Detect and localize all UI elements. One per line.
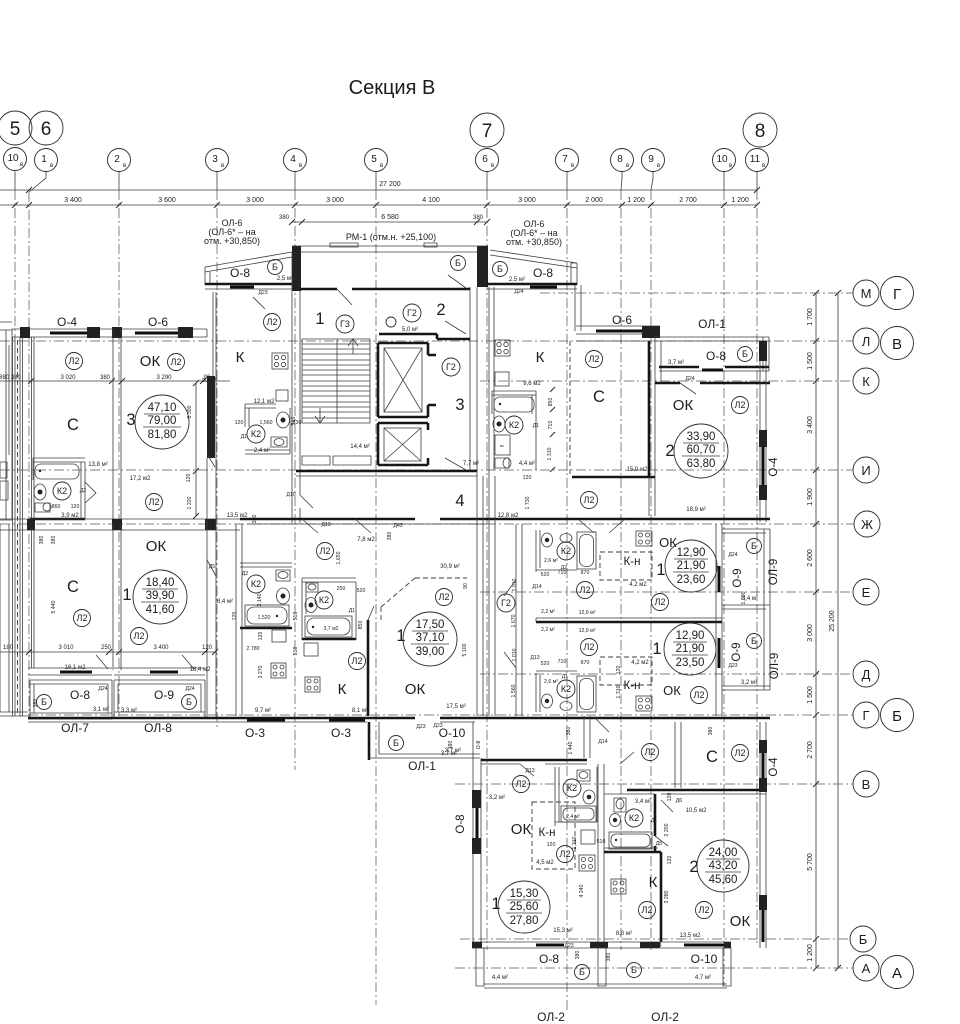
svg-text:О-4: О-4 <box>768 457 780 477</box>
svg-text:в: в <box>762 163 765 169</box>
svg-text:3,1 м²: 3,1 м² <box>93 707 109 713</box>
svg-text:3 000: 3 000 <box>246 197 264 204</box>
svg-text:С: С <box>67 416 79 434</box>
svg-text:Д1: Д1 <box>241 434 248 440</box>
svg-text:2,140: 2,140 <box>257 593 263 606</box>
svg-text:7,7 м²: 7,7 м² <box>463 461 479 467</box>
svg-text:Б: Б <box>393 738 399 748</box>
svg-text:850: 850 <box>548 398 554 407</box>
svg-text:в: в <box>571 163 574 169</box>
svg-text:О-9: О-9 <box>732 568 744 587</box>
svg-text:Д24: Д24 <box>514 289 523 295</box>
svg-text:О-4: О-4 <box>768 757 780 777</box>
svg-text:4 100: 4 100 <box>422 197 440 204</box>
svg-text:120: 120 <box>186 474 192 483</box>
svg-text:3 400: 3 400 <box>64 197 82 204</box>
svg-text:Л2: Л2 <box>352 656 363 666</box>
svg-text:ОЛ-2: ОЛ-2 <box>537 1010 565 1024</box>
svg-text:1 310: 1 310 <box>547 447 553 460</box>
svg-text:120: 120 <box>71 504 80 510</box>
svg-text:3,7 м2: 3,7 м2 <box>323 626 338 632</box>
svg-text:250: 250 <box>337 586 346 592</box>
svg-text:О-8: О-8 <box>539 952 559 966</box>
svg-text:10: 10 <box>7 153 19 164</box>
svg-text:380: 380 <box>33 699 39 708</box>
svg-text:Г2: Г2 <box>446 362 456 372</box>
svg-text:Д24: Д24 <box>652 943 661 949</box>
svg-text:510: 510 <box>291 417 297 426</box>
svg-text:13,5 м2: 13,5 м2 <box>227 513 248 519</box>
svg-text:18,40: 18,40 <box>146 577 175 589</box>
svg-text:ОК: ОК <box>663 683 681 698</box>
svg-text:Д24: Д24 <box>185 686 194 692</box>
svg-text:Л2: Л2 <box>642 905 653 915</box>
svg-text:Д13: Д13 <box>525 768 534 774</box>
svg-text:380: 380 <box>252 515 258 524</box>
svg-text:О-8: О-8 <box>533 266 553 280</box>
svg-text:Г: Г <box>893 286 901 303</box>
svg-text:Д5: Д5 <box>209 564 216 570</box>
svg-text:О-9: О-9 <box>731 642 743 661</box>
svg-text:Л2: Л2 <box>69 356 80 366</box>
svg-text:в: в <box>221 163 224 169</box>
svg-text:3: 3 <box>212 154 218 165</box>
svg-text:Б: Б <box>859 932 868 947</box>
svg-text:3 280: 3 280 <box>664 890 670 903</box>
svg-text:Л2: Л2 <box>516 779 527 789</box>
svg-text:24,00: 24,00 <box>709 847 738 859</box>
svg-text:С: С <box>593 388 605 406</box>
svg-text:ОК: ОК <box>405 681 426 698</box>
svg-text:О-3: О-3 <box>331 726 351 740</box>
svg-text:120: 120 <box>547 842 556 848</box>
svg-text:8,4 м²: 8,4 м² <box>217 599 233 605</box>
svg-text:2 700: 2 700 <box>807 741 814 759</box>
svg-text:380: 380 <box>708 727 714 736</box>
svg-text:Д6: Д6 <box>676 798 683 804</box>
svg-text:О-3: О-3 <box>245 726 265 740</box>
svg-text:в: в <box>657 163 660 169</box>
svg-text:Д23: Д23 <box>433 723 442 729</box>
svg-text:ОЛ-1: ОЛ-1 <box>698 317 726 331</box>
svg-text:О-10: О-10 <box>439 726 466 740</box>
svg-text:10: 10 <box>716 154 728 165</box>
svg-text:Д13: Д13 <box>321 522 330 528</box>
svg-text:4,2 м2: 4,2 м2 <box>629 582 647 588</box>
svg-text:О-8: О-8 <box>230 266 250 280</box>
svg-text:О-9: О-9 <box>154 688 174 702</box>
svg-text:8,0 м²: 8,0 м² <box>616 931 632 937</box>
svg-text:В: В <box>892 336 902 353</box>
svg-text:90: 90 <box>202 378 208 384</box>
svg-text:М: М <box>861 286 872 301</box>
svg-text:1 700: 1 700 <box>807 308 814 326</box>
svg-text:27 200: 27 200 <box>379 181 401 188</box>
svg-text:5 300: 5 300 <box>187 405 193 418</box>
svg-text:К: К <box>338 681 347 698</box>
svg-text:Д14: Д14 <box>532 584 541 590</box>
svg-text:1,310: 1,310 <box>572 836 578 849</box>
svg-text:в: в <box>729 163 732 169</box>
svg-text:Д13: Д13 <box>530 655 539 661</box>
svg-text:23,50: 23,50 <box>676 657 705 669</box>
svg-text:3 400: 3 400 <box>153 645 169 651</box>
svg-text:520: 520 <box>357 588 366 594</box>
svg-text:17,50: 17,50 <box>416 619 445 631</box>
svg-text:90: 90 <box>463 583 469 589</box>
svg-text:43,20: 43,20 <box>709 860 738 872</box>
svg-text:К2: К2 <box>561 546 571 556</box>
svg-text:Л: Л <box>862 334 871 349</box>
svg-text:Секция В: Секция В <box>349 77 436 99</box>
svg-text:С: С <box>67 578 79 596</box>
svg-text:Л2: Л2 <box>645 747 656 757</box>
svg-text:21,90: 21,90 <box>676 643 705 655</box>
svg-text:11: 11 <box>750 154 761 165</box>
svg-text:33,90: 33,90 <box>687 431 716 443</box>
svg-text:870: 870 <box>581 660 590 666</box>
svg-text:К2: К2 <box>561 684 571 694</box>
svg-text:15,0 м2: 15,0 м2 <box>627 467 648 473</box>
svg-text:РМ-1 (отм.н. +25,100): РМ-1 (отм.н. +25,100) <box>346 232 436 242</box>
svg-text:Л2: Л2 <box>655 597 666 607</box>
svg-text:1: 1 <box>122 586 131 604</box>
svg-text:17,5 м²: 17,5 м² <box>446 704 465 710</box>
svg-text:1: 1 <box>41 154 47 165</box>
svg-text:3 290: 3 290 <box>156 375 172 381</box>
svg-text:Л2: Л2 <box>699 905 710 915</box>
svg-text:380: 380 <box>51 536 57 545</box>
svg-text:18,9 м²: 18,9 м² <box>686 507 705 513</box>
svg-text:Л2: Л2 <box>694 690 705 700</box>
svg-text:380: 380 <box>279 215 290 221</box>
svg-text:Д23: Д23 <box>258 290 267 296</box>
svg-text:41,60: 41,60 <box>146 604 175 616</box>
svg-text:3 010: 3 010 <box>58 645 74 651</box>
svg-text:3 400: 3 400 <box>807 416 814 434</box>
svg-text:2,2 м²: 2,2 м² <box>541 609 555 615</box>
svg-text:15,30: 15,30 <box>510 888 539 900</box>
svg-text:ОЛ-9: ОЛ-9 <box>768 559 780 586</box>
svg-text:2,4 м²: 2,4 м² <box>254 448 270 454</box>
svg-text:Л2: Л2 <box>589 354 600 364</box>
svg-text:Л2: Л2 <box>149 497 160 507</box>
svg-text:К2: К2 <box>629 813 639 823</box>
svg-text:880 380: 880 380 <box>0 375 22 381</box>
svg-text:вс: вс <box>500 443 504 448</box>
svg-text:Г2: Г2 <box>501 598 511 608</box>
svg-text:81,80: 81,80 <box>148 429 177 441</box>
svg-text:6 580: 6 580 <box>381 214 399 221</box>
svg-text:8: 8 <box>755 121 766 142</box>
svg-text:Л2: Л2 <box>439 592 450 602</box>
svg-text:380: 380 <box>39 536 45 545</box>
svg-text:520: 520 <box>541 661 550 667</box>
svg-text:Л2: Л2 <box>267 317 278 327</box>
svg-text:3: 3 <box>126 411 135 429</box>
svg-text:Л2: Л2 <box>735 748 746 758</box>
svg-text:250: 250 <box>101 645 112 651</box>
svg-text:4: 4 <box>455 492 464 510</box>
svg-text:2: 2 <box>665 442 674 460</box>
svg-text:4,7 м²: 4,7 м² <box>695 975 711 981</box>
svg-text:1: 1 <box>315 310 324 328</box>
svg-text:2 200: 2 200 <box>664 823 670 836</box>
svg-text:Л2: Л2 <box>560 849 571 859</box>
svg-text:9,6 м2: 9,6 м2 <box>523 381 541 387</box>
svg-text:9: 9 <box>648 154 654 165</box>
svg-text:3,2 м²: 3,2 м² <box>489 795 505 801</box>
svg-text:Б: Б <box>631 965 637 975</box>
svg-text:3,4 м²: 3,4 м² <box>635 799 651 805</box>
svg-text:1 500: 1 500 <box>807 686 814 704</box>
svg-text:1 200: 1 200 <box>731 197 749 204</box>
svg-text:120: 120 <box>523 475 532 481</box>
svg-text:380: 380 <box>606 953 612 962</box>
svg-text:К2: К2 <box>251 429 261 439</box>
svg-text:3,7 м²: 3,7 м² <box>445 748 461 754</box>
svg-text:5,0 м²: 5,0 м² <box>402 327 418 333</box>
svg-text:К2: К2 <box>567 783 577 793</box>
svg-text:Б: Б <box>186 697 192 707</box>
svg-text:1 440: 1 440 <box>568 741 574 754</box>
svg-text:25,60: 25,60 <box>510 901 539 913</box>
svg-text:380: 380 <box>575 951 581 960</box>
svg-text:Г3: Г3 <box>340 319 350 329</box>
svg-text:1: 1 <box>652 640 661 658</box>
svg-text:1: 1 <box>491 895 500 913</box>
svg-text:Д2: Д2 <box>242 571 249 577</box>
svg-text:О-8: О-8 <box>706 349 726 363</box>
svg-text:710: 710 <box>558 570 567 576</box>
svg-text:Л2: Л2 <box>580 585 591 595</box>
svg-text:К-н: К-н <box>624 680 641 692</box>
svg-text:79,00: 79,00 <box>148 415 177 427</box>
svg-text:Д24: Д24 <box>98 686 107 692</box>
svg-text:Д1: Д1 <box>651 818 658 824</box>
svg-text:К-н: К-н <box>624 556 641 568</box>
svg-text:1 310: 1 310 <box>616 685 622 698</box>
svg-text:180: 180 <box>3 645 14 651</box>
svg-text:510: 510 <box>293 612 299 621</box>
svg-text:в: в <box>20 162 23 168</box>
svg-text:380: 380 <box>473 215 484 221</box>
svg-text:К: К <box>649 874 658 891</box>
svg-text:Д23: Д23 <box>416 724 425 730</box>
svg-text:520: 520 <box>541 572 550 578</box>
svg-text:4,4 м²: 4,4 м² <box>519 461 535 467</box>
svg-text:Б: Б <box>742 349 748 359</box>
svg-text:2 700: 2 700 <box>679 197 697 204</box>
svg-text:4 240: 4 240 <box>579 884 585 897</box>
svg-text:1 200: 1 200 <box>807 944 814 962</box>
svg-text:Л2: Л2 <box>320 546 331 556</box>
svg-text:380: 380 <box>100 375 111 381</box>
svg-text:21,90: 21,90 <box>677 560 706 572</box>
svg-text:2: 2 <box>114 154 120 165</box>
svg-text:120: 120 <box>616 666 622 675</box>
svg-text:ОК: ОК <box>730 913 751 930</box>
svg-text:Л2: Л2 <box>584 495 595 505</box>
svg-text:ОЛ-1: ОЛ-1 <box>408 759 436 773</box>
svg-text:К: К <box>862 374 870 389</box>
svg-text:3 600: 3 600 <box>158 197 176 204</box>
svg-text:4,2 м2: 4,2 м2 <box>631 660 649 666</box>
svg-text:1 200: 1 200 <box>627 197 645 204</box>
svg-text:Д23: Д23 <box>564 943 573 949</box>
svg-text:2,5 м²: 2,5 м² <box>509 277 525 283</box>
svg-text:Д43: Д43 <box>393 523 402 529</box>
svg-text:60,70: 60,70 <box>687 444 716 456</box>
svg-text:15,3 м²: 15,3 м² <box>553 928 572 934</box>
svg-text:ОК: ОК <box>659 535 677 550</box>
svg-text:120: 120 <box>232 612 238 621</box>
svg-text:710: 710 <box>548 421 554 430</box>
svg-text:25 200: 25 200 <box>829 610 836 632</box>
svg-text:2,5 м²: 2,5 м² <box>277 276 293 282</box>
svg-text:6: 6 <box>41 119 52 140</box>
svg-text:в: в <box>626 163 629 169</box>
svg-text:Б: Б <box>751 541 757 551</box>
svg-text:1 010: 1 010 <box>512 648 518 661</box>
svg-text:7,8 м2: 7,8 м2 <box>357 537 375 543</box>
svg-text:Д10: Д10 <box>286 492 295 498</box>
svg-text:Д1: Д1 <box>349 608 356 614</box>
svg-text:1 730: 1 730 <box>525 496 531 509</box>
svg-text:Б: Б <box>751 636 757 646</box>
svg-text:К: К <box>236 349 245 366</box>
svg-text:3,3 м²: 3,3 м² <box>121 708 137 714</box>
svg-text:1: 1 <box>656 561 665 579</box>
svg-text:14,4 м²: 14,4 м² <box>350 444 369 450</box>
svg-text:О-6: О-6 <box>148 315 168 329</box>
svg-text:860: 860 <box>52 504 61 510</box>
svg-text:отм. +30,850): отм. +30,850) <box>204 236 260 246</box>
svg-text:Б: Б <box>272 262 278 272</box>
svg-text:в: в <box>380 163 383 169</box>
svg-text:5: 5 <box>371 154 377 165</box>
svg-text:ОК: ОК <box>140 353 161 370</box>
svg-text:2 000: 2 000 <box>585 197 603 204</box>
svg-text:1,560: 1,560 <box>260 420 273 426</box>
svg-text:12,90: 12,90 <box>677 547 706 559</box>
svg-text:3: 3 <box>455 396 464 414</box>
svg-text:1 010: 1 010 <box>512 578 518 591</box>
svg-text:Б: Б <box>455 258 461 268</box>
svg-text:Д1: Д1 <box>562 674 569 680</box>
svg-text:Ж: Ж <box>861 517 873 532</box>
svg-text:5 700: 5 700 <box>807 853 814 871</box>
svg-text:39,00: 39,00 <box>416 646 445 658</box>
svg-text:120: 120 <box>667 856 673 865</box>
svg-text:13,8 м²: 13,8 м² <box>88 462 107 468</box>
svg-text:1,650: 1,650 <box>336 551 342 564</box>
svg-text:Е: Е <box>862 585 871 600</box>
svg-text:710: 710 <box>558 659 567 665</box>
svg-text:870: 870 <box>581 570 590 576</box>
svg-text:в: в <box>491 163 494 169</box>
svg-text:К2: К2 <box>509 420 519 430</box>
svg-text:30,9 м²: 30,9 м² <box>440 564 459 570</box>
svg-text:О-6: О-6 <box>612 313 632 327</box>
svg-text:13,5 м2: 13,5 м2 <box>680 933 701 939</box>
svg-text:Д24: Д24 <box>728 552 737 558</box>
svg-text:О-8: О-8 <box>70 688 90 702</box>
svg-text:3 020: 3 020 <box>60 375 76 381</box>
svg-text:2 780: 2 780 <box>247 646 260 652</box>
svg-text:380: 380 <box>566 727 572 736</box>
svg-text:3 000: 3 000 <box>326 197 344 204</box>
svg-text:3,7 м²: 3,7 м² <box>668 360 684 366</box>
svg-text:К2: К2 <box>57 486 67 496</box>
svg-text:6: 6 <box>482 154 488 165</box>
svg-text:45,60: 45,60 <box>709 874 738 886</box>
svg-text:Г2: Г2 <box>407 308 417 318</box>
svg-text:8,1 м²: 8,1 м² <box>352 708 368 714</box>
svg-text:Л2: Л2 <box>171 357 182 367</box>
svg-text:3,2 м²: 3,2 м² <box>741 680 757 686</box>
svg-text:1 220: 1 220 <box>187 496 193 509</box>
svg-text:4,4 м²: 4,4 м² <box>492 975 508 981</box>
svg-text:Л2: Л2 <box>735 400 746 410</box>
svg-text:ОЛ-8: ОЛ-8 <box>144 721 172 735</box>
svg-text:1,300: 1,300 <box>741 591 747 604</box>
svg-text:2 600: 2 600 <box>807 549 814 567</box>
svg-text:А: А <box>892 965 902 982</box>
svg-text:К2: К2 <box>319 595 329 605</box>
svg-text:О-10: О-10 <box>691 952 718 966</box>
svg-text:Л2: Л2 <box>134 631 145 641</box>
svg-text:2,2 м²: 2,2 м² <box>541 627 555 633</box>
svg-text:К2: К2 <box>251 579 261 589</box>
svg-text:К: К <box>536 349 545 366</box>
svg-text:3 270: 3 270 <box>258 665 264 678</box>
svg-text:Д5: Д5 <box>656 841 663 847</box>
svg-text:Л2: Л2 <box>77 613 88 623</box>
svg-text:5: 5 <box>10 119 21 140</box>
svg-text:8: 8 <box>617 154 623 165</box>
svg-text:Д: Д <box>862 667 871 682</box>
svg-text:ОЛ-2: ОЛ-2 <box>651 1010 679 1024</box>
svg-text:в: в <box>123 163 126 169</box>
svg-text:ОК: ОК <box>146 538 167 555</box>
svg-text:Б: Б <box>41 697 47 707</box>
svg-text:47,10: 47,10 <box>148 402 177 414</box>
svg-text:2,4 м²: 2,4 м² <box>566 814 580 820</box>
svg-text:в: в <box>50 163 53 169</box>
svg-text:4,5 м2: 4,5 м2 <box>536 860 554 866</box>
svg-text:120: 120 <box>202 645 213 651</box>
svg-text:ОЛ-9: ОЛ-9 <box>769 653 781 680</box>
svg-text:2,6 м²: 2,6 м² <box>544 679 558 685</box>
svg-text:7: 7 <box>482 121 493 142</box>
svg-text:10,5 м2: 10,5 м2 <box>686 808 707 814</box>
svg-text:7: 7 <box>562 154 568 165</box>
svg-text:О-8: О-8 <box>455 814 467 833</box>
svg-text:39,90: 39,90 <box>146 590 175 602</box>
svg-text:Б: Б <box>579 967 585 977</box>
svg-text:5 440: 5 440 <box>51 600 57 613</box>
svg-text:1 500: 1 500 <box>807 352 814 370</box>
svg-text:ОК: ОК <box>511 821 532 838</box>
svg-text:1,520: 1,520 <box>258 615 271 621</box>
svg-text:А: А <box>862 961 871 976</box>
svg-text:120: 120 <box>258 632 264 641</box>
svg-text:120: 120 <box>235 420 244 426</box>
svg-text:12,90: 12,90 <box>676 630 705 642</box>
svg-text:С: С <box>706 748 718 766</box>
svg-text:3 000: 3 000 <box>518 197 536 204</box>
